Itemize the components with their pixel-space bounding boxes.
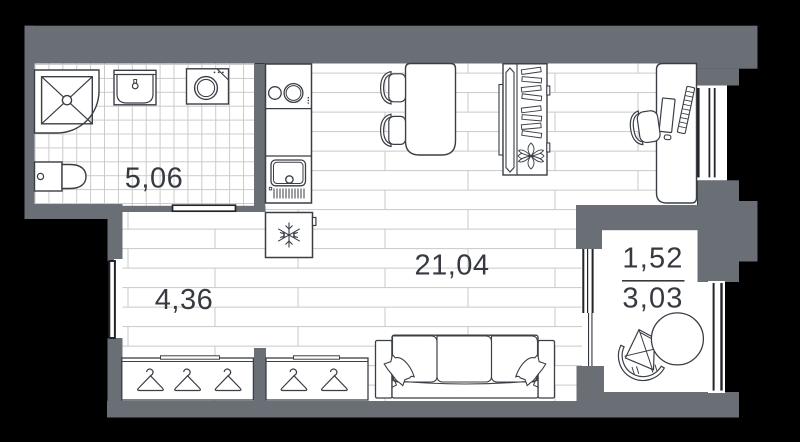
svg-text:5,06: 5,06 bbox=[125, 162, 183, 194]
svg-text:21,04: 21,04 bbox=[414, 249, 489, 281]
svg-text:1,52: 1,52 bbox=[622, 242, 683, 274]
svg-text:4,36: 4,36 bbox=[155, 284, 213, 316]
svg-text:3,03: 3,03 bbox=[622, 282, 683, 314]
